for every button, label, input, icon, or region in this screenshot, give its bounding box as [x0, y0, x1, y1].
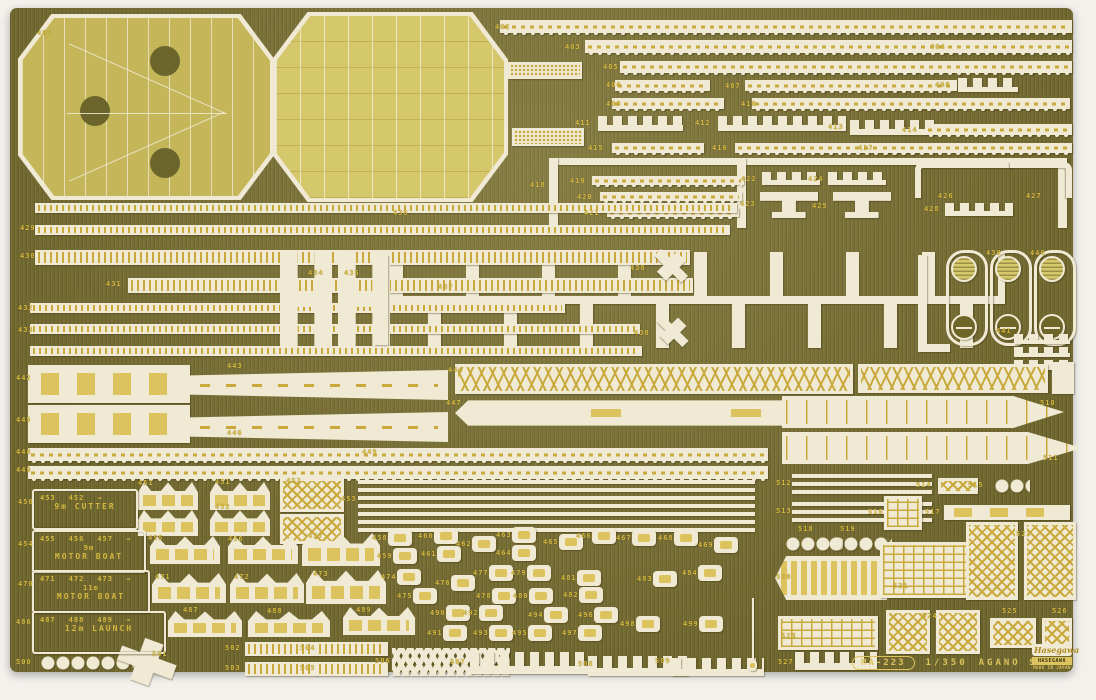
part-number-label: 466: [576, 532, 592, 540]
part-number-label: 522: [1016, 530, 1032, 538]
part-small: [577, 570, 601, 586]
part-number-label: 419: [570, 177, 586, 185]
part-number-label: 442: [16, 374, 32, 382]
part-number-label: 473: [313, 570, 329, 578]
part-number-label: 423: [740, 200, 756, 208]
part-truss: [455, 364, 853, 394]
boat-part-numbers: 471472473→: [34, 572, 148, 583]
part-number-label: 492: [463, 609, 479, 617]
part-number-label: 453: [341, 495, 357, 503]
brand-logo: Hasegawa HASEGAWA MADE IN JAPAN: [1032, 644, 1072, 670]
boat-part-number: 489: [97, 616, 113, 624]
part-small: [512, 527, 536, 543]
part-rail: [752, 98, 1070, 109]
part-small: [437, 546, 461, 562]
part-combrow: [470, 652, 588, 674]
part-small: [653, 571, 677, 587]
part-number-label: 427: [1026, 192, 1042, 200]
part-bar: [374, 255, 388, 345]
part-panelTruss: [782, 396, 1064, 428]
part-number-label: 468: [658, 534, 674, 542]
part-number-label: 403: [565, 43, 581, 51]
part-small: [636, 616, 660, 632]
part-number-label: 426: [938, 192, 954, 200]
deck-circle: [150, 46, 180, 76]
part-number-label: 477: [473, 569, 489, 577]
part-number-label: 460: [418, 532, 434, 540]
part-number-label: 478: [476, 592, 492, 600]
part-small: [529, 588, 553, 604]
part-latt: [966, 522, 1018, 600]
part-number-label: 474: [381, 573, 397, 581]
boat-label-box: 453452→9m CUTTER: [32, 489, 138, 530]
part-chain: [994, 477, 1030, 495]
photo-background: MA-223 1/350 AGANO SUPER Hasegawa HASEGA…: [0, 0, 1096, 700]
part-number-label: 409: [606, 100, 622, 108]
part-small: [714, 537, 738, 553]
boat-part-number: 487: [40, 616, 56, 624]
part-number-label: 452: [215, 503, 231, 511]
part-number-label: 438: [634, 329, 650, 337]
part-number-label: 475: [397, 592, 413, 600]
part-cat: [28, 405, 190, 443]
product-code: MA-223: [852, 656, 915, 670]
part-number-label: 500: [16, 658, 32, 666]
part-number-label: 450: [18, 498, 34, 506]
part-number-label: 422: [741, 175, 757, 183]
part-number-label: 438: [630, 264, 646, 272]
boat-size-label: 9m: [34, 544, 144, 552]
boat-part-numbers: 453452→: [34, 491, 136, 502]
part-number-label: 518: [798, 525, 814, 533]
part-combrow: [1014, 334, 1070, 344]
part-number-label: 508: [578, 660, 594, 668]
part-stack: [792, 474, 932, 498]
part-stack: [358, 480, 755, 532]
part-bar: [918, 255, 927, 350]
part-small: [527, 565, 551, 581]
part-number-label: 420: [577, 193, 593, 201]
part-number-label: 449: [362, 448, 378, 456]
part-number-label: 514: [916, 481, 932, 489]
part-number-label: 479: [511, 569, 527, 577]
part-small: [388, 530, 412, 546]
part-number-label: 472: [234, 573, 250, 581]
part-number-label: 433: [18, 326, 34, 334]
part-number-label: 491: [427, 629, 443, 637]
part-small: [397, 569, 421, 585]
brand-script-mark: Hasegawa: [1032, 644, 1072, 656]
part-number-label: 458: [372, 534, 388, 542]
part-number-label: 506: [375, 657, 391, 665]
deck-guide-line: [67, 113, 227, 114]
part-small: [632, 530, 656, 546]
part-number-label: 417: [858, 144, 874, 152]
part-number-label: 449: [16, 466, 32, 474]
boat-part-numbers: 487488489→: [34, 613, 164, 624]
part-rail: [585, 40, 1072, 53]
part-number-label: 527: [778, 658, 794, 666]
boat-part-number: 471: [40, 575, 56, 583]
part-small: [489, 565, 513, 581]
part-number-label: 489: [356, 606, 372, 614]
brand-origin-text: MADE IN JAPAN: [1032, 665, 1072, 670]
part-number-label: 513: [776, 507, 792, 515]
part-small: [698, 565, 722, 581]
part-number-label: 455: [148, 534, 164, 542]
part-number-label: 428: [924, 205, 940, 213]
part-number-label: 446: [227, 429, 243, 437]
part-rail: [600, 192, 742, 201]
part-number-label: 441: [996, 327, 1012, 335]
part-number-label: 451: [138, 479, 154, 487]
boat-part-number: 453: [40, 494, 56, 502]
part-number-label: 425: [812, 202, 828, 210]
deck-circle: [80, 96, 110, 126]
part-rail: [612, 98, 724, 109]
part-small: [594, 607, 618, 623]
part-small: [544, 607, 568, 623]
part-rail: [28, 448, 768, 461]
part-number-label: 436: [393, 209, 409, 217]
part-number-label: 524: [922, 612, 938, 620]
part-number-label: 461: [421, 550, 437, 558]
funnel-grille-part: [1034, 250, 1076, 346]
part-number-label: 413: [828, 123, 844, 131]
boat-part-number: 473: [97, 575, 113, 583]
grille-top: [995, 256, 1021, 282]
part-number-label: 498: [620, 620, 636, 628]
part-truss: [858, 364, 1048, 393]
part-ladder: [316, 642, 388, 656]
part-rail: [880, 143, 1072, 153]
part-number-label: 515: [968, 481, 984, 489]
boat-part-number: 452: [69, 494, 85, 502]
part-number-label: 445: [16, 416, 32, 424]
boat-label-box: 487488489→12m LAUNCH: [32, 611, 166, 654]
part-number-label: 448: [16, 448, 32, 456]
part-bar: [918, 344, 950, 352]
part-number-label: 443: [227, 362, 243, 370]
part-number-label: 507: [450, 658, 466, 666]
part-number-label: 487: [183, 606, 199, 614]
boat-name-label: MOTOR BOAT: [34, 592, 148, 601]
part-number-label: 503: [225, 664, 241, 672]
part-corner: [915, 162, 1013, 198]
part-number-label: 480: [513, 592, 529, 600]
part-dots: [512, 128, 584, 146]
part-combrow: [958, 78, 1018, 92]
part-ladder: [35, 203, 737, 213]
part-cat: [28, 365, 190, 403]
brand-name-plate: HASEGAWA: [1032, 657, 1072, 665]
part-number-label: 495: [512, 629, 528, 637]
part-number-label: 467: [616, 534, 632, 542]
part-number-label: 414: [902, 126, 918, 134]
part-number-label: 415: [588, 144, 604, 152]
boat-name-label: 12m LAUNCH: [34, 624, 164, 633]
part-number-label: 471: [155, 573, 171, 581]
part-number-label: 440: [1030, 249, 1046, 257]
part-small: [674, 530, 698, 546]
part-small: [479, 605, 503, 621]
part-number-label: 493: [473, 629, 489, 637]
part-number-label: 407: [725, 82, 741, 90]
part-small: [579, 587, 603, 603]
part-number-label: 516: [868, 508, 884, 516]
boat-part-number: 488: [69, 616, 85, 624]
part-number-label: 505: [300, 664, 316, 672]
part-davit: [833, 192, 891, 218]
part-cradle: [248, 611, 330, 637]
boat-part-number: 472: [69, 575, 85, 583]
part-rail: [612, 143, 704, 153]
part-number-label: 401: [37, 29, 53, 37]
part-small: [413, 588, 437, 604]
part-number-label: 483: [637, 575, 653, 583]
grille-top: [951, 256, 977, 282]
part-small: [472, 536, 496, 552]
part-ladder: [128, 278, 693, 293]
part-rail: [28, 466, 768, 479]
part-dots: [508, 62, 582, 79]
grid-deck-part: [272, 12, 508, 202]
part-number-label: 490: [430, 609, 446, 617]
part-ladder: [35, 250, 690, 265]
part-number-label: 511: [1043, 454, 1059, 462]
part-number-label: 463: [496, 531, 512, 539]
part-number-label: 497: [562, 629, 578, 637]
part-small: [451, 575, 475, 591]
part-number-label: 435: [344, 269, 360, 277]
part-number-label: 494: [528, 611, 544, 619]
part-number-label: 437: [438, 283, 454, 291]
part-number-label: 523: [781, 632, 797, 640]
part-small: [489, 625, 513, 641]
part-combrow: [850, 120, 935, 135]
part-davit: [760, 192, 818, 218]
part-latt: [990, 618, 1036, 648]
part-number-label: 429: [20, 224, 36, 232]
part-cat: [944, 505, 1070, 520]
part-combrow: [718, 116, 846, 131]
part-grid: [884, 496, 922, 530]
part-combrow: [945, 203, 1013, 216]
part-rail: [620, 61, 1072, 73]
part-number-label: 517: [925, 508, 941, 516]
part-ladder: [35, 225, 730, 235]
part-number-label: 405: [603, 63, 619, 71]
part-number-label: 488: [267, 607, 283, 615]
part-small: [512, 545, 536, 561]
part-small: [578, 625, 602, 641]
part-rail: [745, 80, 957, 91]
part-number-label: 519: [840, 525, 856, 533]
flight-deck-part: [18, 14, 274, 200]
part-number-label: 406: [606, 81, 622, 89]
part-latt: [936, 610, 980, 654]
part-number-label: 526: [1052, 607, 1068, 615]
part-number-label: 484: [682, 569, 698, 577]
part-number-label: 465: [543, 538, 559, 546]
scale-label: 1/350: [926, 658, 968, 668]
part-rail: [592, 176, 744, 185]
part-number-label: 470: [18, 580, 34, 588]
part-number-label: 462: [456, 540, 472, 548]
part-small: [528, 625, 552, 641]
part-number-label: 444: [448, 366, 464, 374]
part-number-label: 408: [935, 81, 951, 89]
part-number-label: 404: [930, 43, 946, 51]
part-number-label: 456: [228, 535, 244, 543]
part-number-label: 521: [893, 582, 909, 590]
boat-part-numbers: 455456457→: [34, 532, 144, 543]
part-number-label: 476: [435, 579, 451, 587]
part-ladder: [30, 346, 642, 356]
part-number-label: 439: [986, 249, 1002, 257]
part-number-label: 504: [300, 644, 316, 652]
part-number-label: 469: [698, 541, 714, 549]
part-number-label: 486: [16, 618, 32, 626]
part-rail: [500, 20, 1072, 33]
part-number-label: 509: [655, 657, 671, 665]
part-rail: [925, 124, 1072, 135]
part-number-label: 412: [695, 119, 711, 127]
part-number-label: 512: [776, 479, 792, 487]
boat-size-label: 11m: [34, 584, 148, 592]
part-number-label: 520: [776, 573, 792, 581]
part-number-label: 447: [446, 399, 462, 407]
part-rail: [615, 80, 710, 91]
boat-name-label: MOTOR BOAT: [34, 552, 144, 561]
part-small: [592, 528, 616, 544]
grille-top: [1039, 256, 1065, 282]
part-bar: [752, 598, 754, 660]
part-number-label: 502: [225, 644, 241, 652]
part-cradle: [168, 611, 242, 637]
part-number-label: 432: [18, 304, 34, 312]
arrow-icon: →: [126, 535, 131, 543]
part-combrow: [828, 172, 886, 185]
part-number-label: 434: [308, 269, 324, 277]
part-number-label: 410: [741, 100, 757, 108]
deck-surface: [22, 18, 270, 196]
arrow-icon: →: [126, 575, 131, 583]
part-number-label: 430: [20, 252, 36, 260]
part-number-label: 496: [578, 611, 594, 619]
part-combrow: [1014, 347, 1070, 357]
boat-name-label: 9m CUTTER: [34, 502, 136, 511]
part-number-label: 501: [152, 650, 168, 658]
part-small: [443, 625, 467, 641]
part-small: [699, 616, 723, 632]
boat-label-box: 471472473→11mMOTOR BOAT: [32, 570, 150, 613]
boat-label-box: 455456457→9mMOTOR BOAT: [32, 530, 146, 573]
part-ladder: [30, 324, 640, 334]
part-number-label: 454: [18, 540, 34, 548]
deck-circle: [150, 148, 180, 178]
part-number-label: 457: [308, 532, 324, 540]
part-panelTruss: [782, 432, 1082, 464]
boat-part-number: 456: [69, 535, 85, 543]
part-number-label: 451: [215, 478, 231, 486]
grille-bottom: [951, 314, 977, 340]
part-number-label: 464: [496, 549, 512, 557]
part-cradle: [210, 510, 270, 536]
part-blob: [748, 660, 757, 671]
part-number-label: 431: [106, 280, 122, 288]
part-number-label: 402: [495, 23, 511, 31]
deck-grid-surface: [276, 16, 504, 198]
part-number-label: 424: [808, 175, 824, 183]
part-small: [434, 528, 458, 544]
part-number-label: 482: [563, 591, 579, 599]
part-number-label: 411: [575, 119, 591, 127]
part-small: [393, 548, 417, 564]
part-number-label: 416: [712, 144, 728, 152]
part-cradle: [138, 510, 198, 536]
boat-part-number: 457: [97, 535, 113, 543]
part-combrow: [598, 116, 683, 131]
part-number-label: 418: [530, 181, 546, 189]
part-number-label: 421: [584, 209, 600, 217]
part-bar: [1052, 362, 1074, 394]
part-bar: [549, 158, 558, 228]
part-number-label: 481: [561, 574, 577, 582]
part-number-label: 459: [377, 552, 393, 560]
part-number-label: 452: [286, 477, 302, 485]
part-number-label: 525: [1002, 607, 1018, 615]
part-number-label: 510: [1040, 399, 1056, 407]
part-number-label: 499: [683, 620, 699, 628]
arrow-icon: →: [126, 616, 131, 624]
arrow-icon: →: [97, 494, 102, 502]
part-cradle: [343, 607, 415, 635]
funnel-grille-part: [946, 250, 988, 346]
boat-part-number: 455: [40, 535, 56, 543]
